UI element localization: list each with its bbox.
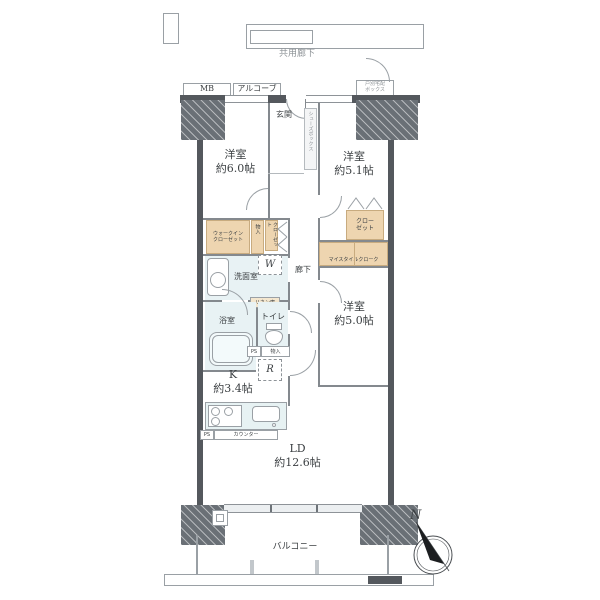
my-style-cloak-divider xyxy=(354,243,355,265)
stove-burner2-icon xyxy=(224,407,233,416)
compass-icon xyxy=(404,518,462,580)
ld-size: 約12.6帖 xyxy=(245,456,350,470)
closet-folding-door-icon xyxy=(347,197,383,210)
hallway-label: 廊下 xyxy=(289,265,317,275)
bedroom1-size: 約6.0帖 xyxy=(203,162,268,176)
bedroom3-name: 洋室 xyxy=(320,300,388,314)
toilet-door-arc xyxy=(290,311,312,333)
floor-plan: 共用廊下 MB アルコーブ 戸別宅配 ボックス 玄関 シューズボックス xyxy=(0,0,600,600)
wall-hall-left-d xyxy=(288,376,290,406)
corridor-outline-small xyxy=(163,13,179,44)
balcony-window-band xyxy=(224,504,362,513)
bedroom1-door-arc xyxy=(246,188,268,210)
bathtub-inner-icon xyxy=(212,335,250,363)
delivery-box-line2: ボックス xyxy=(357,87,393,93)
closet-line1: クロー xyxy=(347,218,383,225)
balcony-label: バルコニー xyxy=(250,542,340,553)
kitchen-size: 約3.4帖 xyxy=(203,382,263,396)
stove-burner1-icon xyxy=(211,407,220,416)
wall-hall-right-a xyxy=(318,103,320,195)
evacuation-hatch-inner xyxy=(216,514,224,522)
ld-door-arc xyxy=(290,350,316,376)
strip-folding-door-icon xyxy=(277,221,288,253)
bedroom3-size: 約5.0帖 xyxy=(320,314,388,328)
column-top-left xyxy=(181,100,225,140)
balcony-post2 xyxy=(315,560,319,575)
ps-box-kitchen: PS xyxy=(200,430,214,440)
balcony-side-left xyxy=(196,535,198,575)
shoe-box-label: シューズボックス xyxy=(308,111,314,151)
counter-label: カウンター xyxy=(214,430,278,440)
entrance-label: 玄関 xyxy=(270,110,298,120)
toilet-tank-icon xyxy=(266,323,282,330)
shoe-box: シューズボックス xyxy=(304,108,317,170)
bedroom3-label: 洋室 約5.0帖 xyxy=(320,300,388,330)
wall-bedroom3-ld xyxy=(318,385,388,387)
washer-space: W xyxy=(258,255,282,275)
storage-under-toilet: 物入 xyxy=(261,346,290,357)
exterior-door-arc xyxy=(366,58,390,82)
window-tick2 xyxy=(316,505,318,512)
column-top-right xyxy=(356,100,418,140)
walk-in-closet: ウォークイン クローゼット xyxy=(206,220,250,254)
bedroom1-name: 洋室 xyxy=(203,148,268,162)
bedroom2-label: 洋室 約5.1帖 xyxy=(320,150,388,180)
bedroom2-door-arc xyxy=(320,196,342,218)
wall-hall-left-a xyxy=(288,218,290,258)
washbasin-bowl-icon xyxy=(210,272,226,288)
bathroom-label: 浴室 xyxy=(207,316,247,326)
closet-line2: ゼット xyxy=(347,225,383,232)
bedroom2-size: 約5.1帖 xyxy=(320,164,388,178)
wall-genkan-bedroom1 xyxy=(268,103,270,220)
wic-line2: クローゼット xyxy=(207,237,249,243)
window-tick1 xyxy=(270,505,272,512)
common-corridor-label: 共用廊下 xyxy=(263,49,331,60)
balcony-side-right xyxy=(387,535,389,575)
genkan-step-line xyxy=(268,173,304,174)
window-bedroom1 xyxy=(225,95,268,103)
balcony-rail-dark-segment xyxy=(368,576,402,584)
ps-box: PS xyxy=(247,346,261,357)
balcony-post1 xyxy=(250,560,254,575)
wall-hall-left-b xyxy=(288,282,290,310)
bedroom2-name: 洋室 xyxy=(320,150,388,164)
faucet-icon xyxy=(272,423,276,427)
toilet-label: トイレ xyxy=(256,312,290,322)
bedroom1-label: 洋室 約6.0帖 xyxy=(203,148,268,178)
my-style-cloak: マイスタイルクローク xyxy=(319,242,388,266)
window-bedroom2 xyxy=(306,95,352,103)
kitchen-label: K 約3.4帖 xyxy=(203,368,263,396)
bedroom2-closet: クロー ゼット xyxy=(346,210,384,240)
wall-storage-bedroom3 xyxy=(318,266,388,268)
kitchen-name: K xyxy=(203,368,263,382)
corridor-outline-inner xyxy=(250,30,313,44)
wall-top-b xyxy=(268,95,286,103)
storage-strip-label: 物入 xyxy=(255,224,261,234)
storage-strip: 物入 xyxy=(251,220,264,254)
wall-right xyxy=(388,100,394,505)
ld-label: LD 約12.6帖 xyxy=(245,442,350,472)
stove-burner3-icon xyxy=(211,417,220,426)
sink-icon xyxy=(252,406,280,422)
ld-name: LD xyxy=(245,442,350,456)
